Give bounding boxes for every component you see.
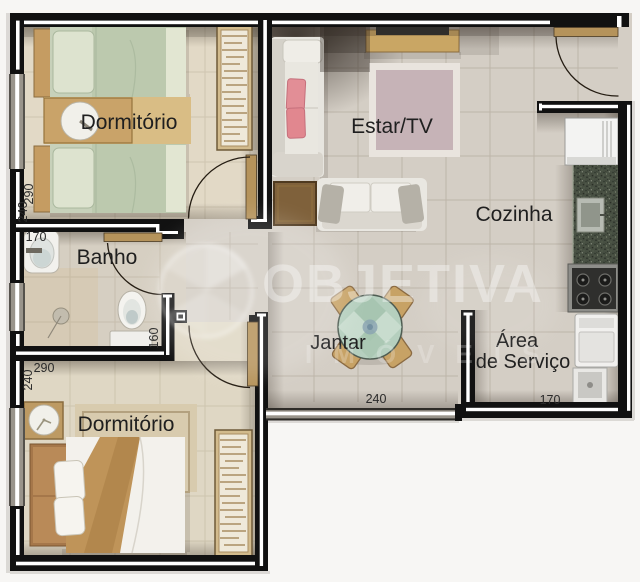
svg-text:240: 240 xyxy=(16,202,30,223)
svg-text:240: 240 xyxy=(21,370,35,391)
svg-text:IMÓVEIS: IMÓVEIS xyxy=(305,339,560,369)
svg-text:170: 170 xyxy=(26,230,47,244)
svg-text:160: 160 xyxy=(147,328,161,349)
svg-text:Cozinha: Cozinha xyxy=(475,203,552,226)
svg-text:Estar/TV: Estar/TV xyxy=(351,115,433,138)
svg-text:290: 290 xyxy=(22,184,36,205)
svg-text:170: 170 xyxy=(540,393,561,407)
svg-text:Banho: Banho xyxy=(77,246,138,269)
svg-text:Dormitório: Dormitório xyxy=(81,111,178,134)
svg-text:290: 290 xyxy=(34,361,55,375)
svg-text:Dormitório: Dormitório xyxy=(78,413,175,436)
svg-text:240: 240 xyxy=(366,392,387,406)
svg-text:OBJETIVA: OBJETIVA xyxy=(262,254,544,314)
